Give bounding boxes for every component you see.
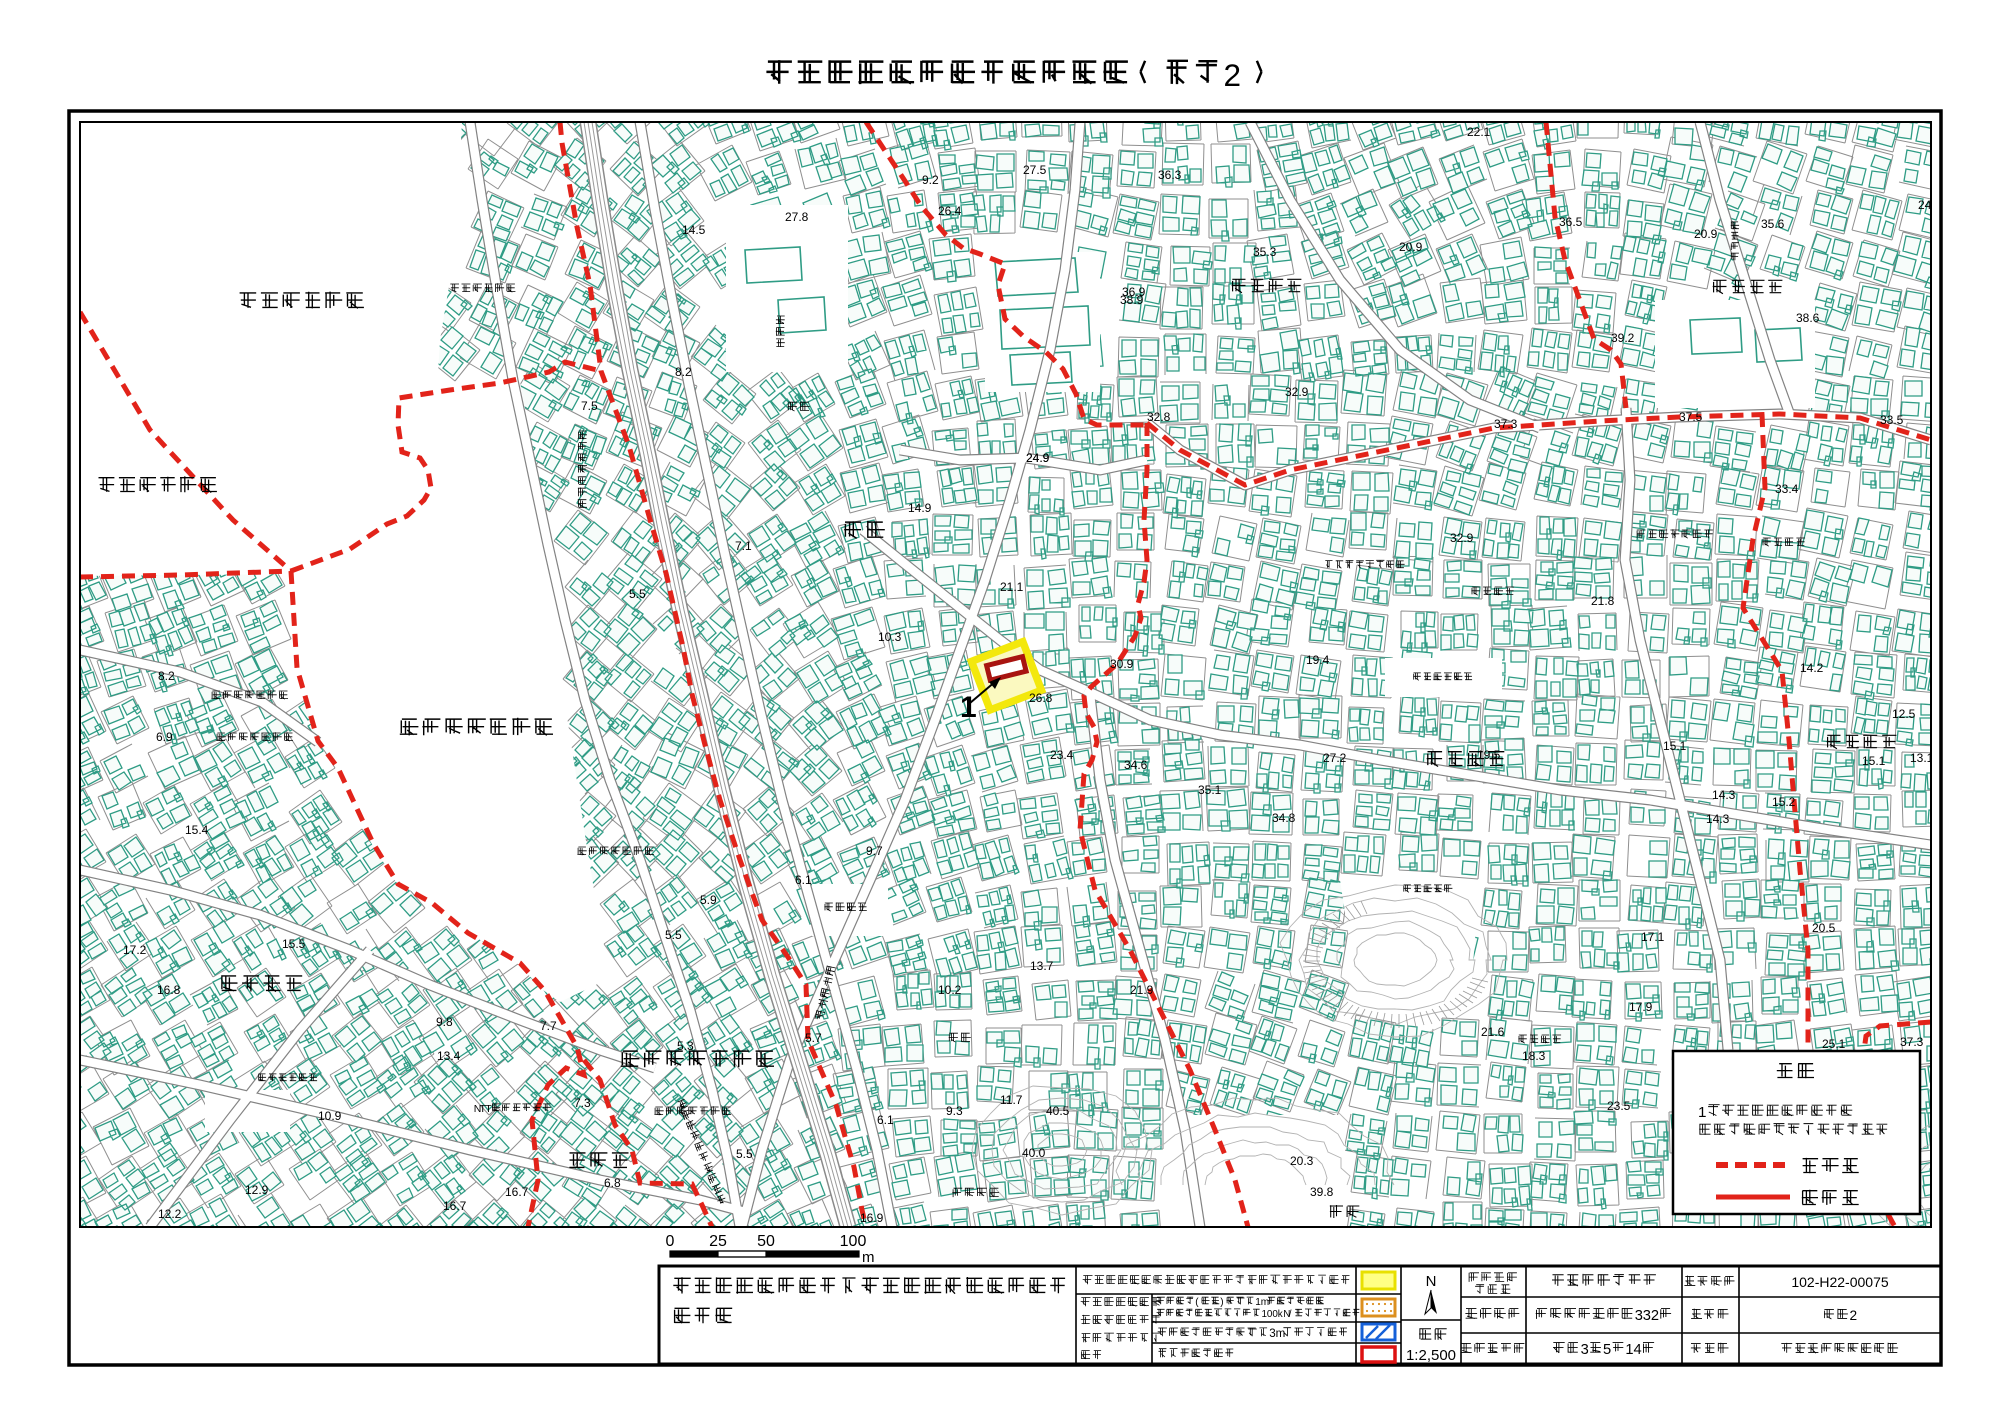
svg-text:5.3: 5.3 [677, 1039, 694, 1053]
svg-text:8.2: 8.2 [675, 365, 692, 379]
svg-text:10.2: 10.2 [938, 983, 962, 997]
svg-text:37.3: 37.3 [1494, 417, 1518, 431]
svg-text:37.5: 37.5 [1679, 410, 1703, 424]
svg-text:23.5: 23.5 [1607, 1099, 1631, 1113]
svg-text:12.2: 12.2 [158, 1207, 182, 1221]
svg-text:19.5: 19.5 [1477, 748, 1501, 762]
svg-text:3: 3 [1581, 1342, 1589, 1358]
svg-text:/: / [1289, 1309, 1292, 1320]
svg-text:4: 4 [1634, 1342, 1642, 1358]
svg-text:5: 5 [1603, 1342, 1611, 1358]
svg-text:6.9: 6.9 [156, 730, 173, 744]
svg-text:16.9: 16.9 [860, 1211, 884, 1225]
svg-text:21.1: 21.1 [1000, 580, 1024, 594]
svg-text:2: 2 [1224, 57, 1242, 93]
svg-text:15.2: 15.2 [1772, 795, 1796, 809]
svg-text:9.7: 9.7 [866, 844, 883, 858]
svg-text:15.4: 15.4 [185, 823, 209, 837]
svg-text:35.3: 35.3 [1253, 245, 1277, 259]
svg-text:17.9: 17.9 [1629, 1000, 1653, 1014]
svg-text:7.5: 7.5 [581, 399, 598, 413]
svg-text:m: m [862, 1249, 875, 1266]
svg-text:2: 2 [1850, 1308, 1858, 1323]
svg-text:14.2: 14.2 [1800, 661, 1824, 675]
svg-text:1: 1 [1698, 1104, 1706, 1121]
svg-text:10.3: 10.3 [878, 630, 902, 644]
svg-text:15.1: 15.1 [1663, 739, 1687, 753]
svg-text:14.3: 14.3 [1706, 812, 1730, 826]
svg-text:35.1: 35.1 [1198, 783, 1222, 797]
svg-text:26.8: 26.8 [1029, 691, 1053, 705]
svg-text:23.4: 23.4 [1050, 748, 1074, 762]
svg-text:5.5: 5.5 [665, 928, 682, 942]
svg-text:30.9: 30.9 [1110, 657, 1134, 671]
svg-text:1: 1 [1625, 1342, 1633, 1358]
svg-text:3: 3 [1643, 1308, 1651, 1324]
svg-text:11.7: 11.7 [1000, 1093, 1023, 1107]
svg-text:25: 25 [709, 1233, 727, 1250]
svg-text:15.5: 15.5 [282, 937, 306, 951]
svg-text:20.5: 20.5 [1812, 921, 1836, 935]
svg-text:33.4: 33.4 [1775, 482, 1799, 496]
svg-text:32.9: 32.9 [1285, 385, 1309, 399]
svg-text:27.2: 27.2 [1323, 751, 1347, 765]
svg-text:6.8: 6.8 [604, 1176, 621, 1190]
svg-text:15.1: 15.1 [1862, 754, 1886, 768]
svg-text:16.8: 16.8 [157, 983, 181, 997]
svg-text:40.5: 40.5 [1046, 1104, 1070, 1118]
svg-text:10.9: 10.9 [318, 1109, 342, 1123]
svg-text:3: 3 [1635, 1308, 1643, 1324]
svg-text:13.4: 13.4 [437, 1049, 461, 1063]
svg-text:25.1: 25.1 [1822, 1037, 1846, 1051]
svg-text:36.5: 36.5 [1559, 215, 1583, 229]
svg-text:12.9: 12.9 [245, 1183, 269, 1197]
svg-text:7.3: 7.3 [574, 1096, 591, 1110]
svg-text:14.9: 14.9 [908, 501, 932, 515]
svg-text:1: 1 [960, 691, 977, 724]
svg-text:9.8: 9.8 [436, 1015, 453, 1029]
svg-text:17.2: 17.2 [123, 943, 147, 957]
svg-text:26.4: 26.4 [938, 204, 962, 218]
svg-text:20.9: 20.9 [1399, 240, 1423, 254]
svg-text:5.9: 5.9 [700, 893, 717, 907]
svg-text:21.9: 21.9 [1130, 983, 1154, 997]
svg-text:5.5: 5.5 [736, 1147, 753, 1161]
svg-text:6.1: 6.1 [877, 1113, 894, 1127]
svg-text:22.1: 22.1 [1467, 125, 1491, 139]
svg-text:N: N [1426, 1273, 1437, 1290]
svg-text:27.8: 27.8 [785, 210, 809, 224]
svg-text:18.3: 18.3 [1522, 1049, 1546, 1063]
svg-text:12.5: 12.5 [1892, 707, 1916, 721]
svg-text:39.8: 39.8 [1310, 1185, 1334, 1199]
svg-text:17.1: 17.1 [1641, 930, 1665, 944]
svg-text:24.9: 24.9 [1026, 451, 1050, 465]
svg-text:k: k [1278, 1309, 1283, 1320]
svg-text:36.9: 36.9 [1122, 285, 1146, 299]
svg-text:6.1: 6.1 [795, 873, 812, 887]
svg-text:32.8: 32.8 [1147, 410, 1171, 424]
svg-text:38.6: 38.6 [1796, 311, 1820, 325]
svg-text:7.1: 7.1 [735, 539, 752, 553]
svg-text:27.5: 27.5 [1023, 163, 1047, 177]
svg-text:m: m [1276, 1327, 1286, 1340]
svg-text:35.6: 35.6 [1761, 217, 1785, 231]
svg-text:m: m [1261, 1297, 1269, 1308]
svg-text:9.3: 9.3 [946, 1104, 963, 1118]
svg-text:37.3: 37.3 [1900, 1035, 1924, 1049]
svg-text:14.5: 14.5 [682, 223, 706, 237]
svg-text:21.8: 21.8 [1591, 594, 1615, 608]
svg-text:5.7: 5.7 [805, 1031, 822, 1045]
svg-text:9.2: 9.2 [922, 173, 939, 187]
svg-text:20.3: 20.3 [1290, 1154, 1314, 1168]
svg-text:14.3: 14.3 [1712, 788, 1736, 802]
svg-text:21.6: 21.6 [1481, 1025, 1505, 1039]
svg-text:T: T [485, 1103, 492, 1115]
svg-text:16.7: 16.7 [443, 1199, 467, 1213]
svg-text:102-H22-00075: 102-H22-00075 [1791, 1274, 1889, 1290]
svg-text:34.8: 34.8 [1272, 811, 1296, 825]
svg-text:): ) [1220, 1297, 1223, 1308]
svg-text:16.7: 16.7 [505, 1185, 529, 1199]
svg-text:32.9: 32.9 [1450, 531, 1474, 545]
svg-text:34.6: 34.6 [1124, 758, 1148, 772]
svg-text:8.2: 8.2 [158, 669, 175, 683]
svg-text:13.7: 13.7 [1030, 959, 1054, 973]
svg-text:7.7: 7.7 [540, 1019, 557, 1033]
svg-text:36.3: 36.3 [1158, 168, 1182, 182]
svg-text:2: 2 [1651, 1308, 1659, 1324]
svg-text:100: 100 [840, 1233, 867, 1250]
svg-text:40.0: 40.0 [1022, 1146, 1046, 1160]
svg-text:5.5: 5.5 [629, 587, 646, 601]
svg-text:39.2: 39.2 [1611, 331, 1635, 345]
svg-text:20.9: 20.9 [1694, 227, 1718, 241]
svg-text:0: 0 [666, 1233, 675, 1250]
svg-text:50: 50 [757, 1233, 775, 1250]
svg-text:33.5: 33.5 [1880, 413, 1904, 427]
svg-text:1:2,500: 1:2,500 [1406, 1347, 1456, 1364]
svg-text:19.4: 19.4 [1306, 653, 1330, 667]
